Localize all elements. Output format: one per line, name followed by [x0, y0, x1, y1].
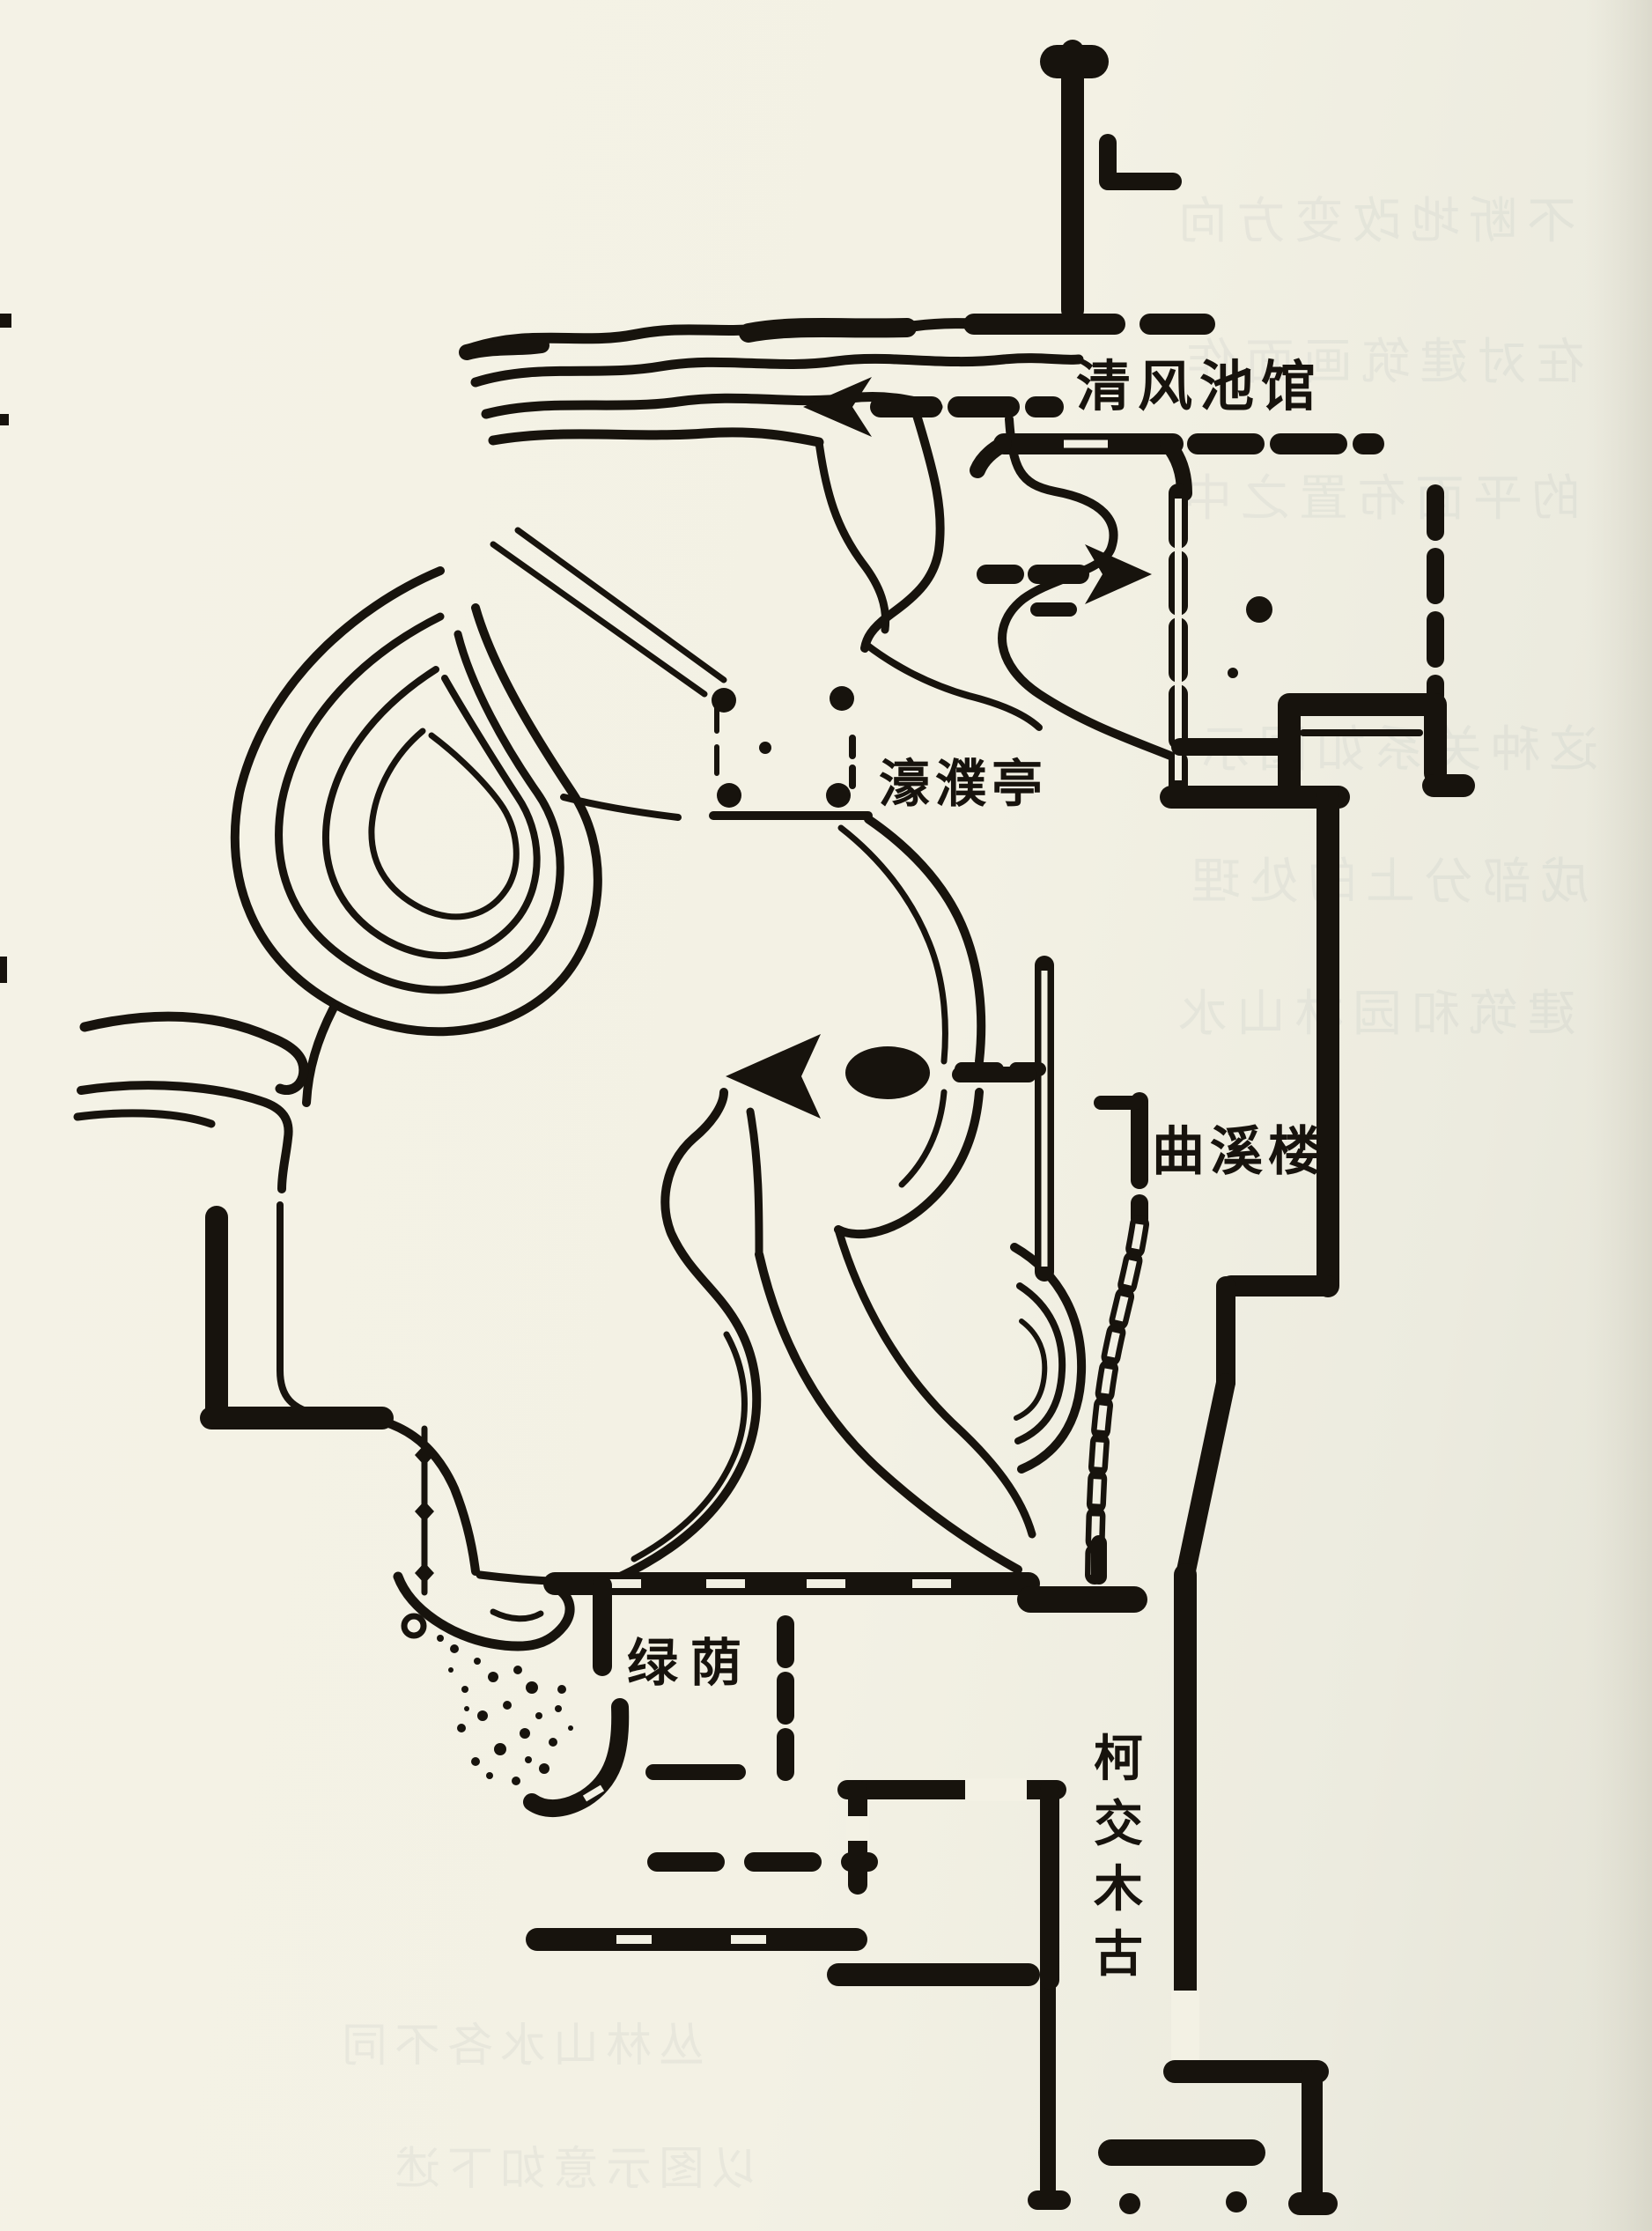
label-quxi-tower: 曲溪楼	[1152, 1123, 1326, 1181]
label-gumu-char: 柯	[1094, 1732, 1143, 1787]
page-edge-shadow	[1585, 0, 1652, 2231]
page-edge-ink	[0, 314, 11, 983]
sight-arrow-north-west	[803, 377, 1053, 437]
bleedthrough-row: 丛林山水各不同	[335, 2021, 704, 2072]
pavilion-corner-column	[830, 686, 854, 711]
column-dot	[1246, 596, 1272, 623]
hooked-path	[532, 1707, 620, 1808]
pond-shorelines	[280, 797, 1081, 1582]
sight-arrow-east	[986, 544, 1152, 604]
quxi-tower-walls	[962, 965, 1139, 1575]
garden-plan-figure: 不断地改变方向 在对建筑画面作 的平面布置之中 这种关系如图示 成部分上的处理 …	[0, 0, 1652, 2231]
column-dot	[1226, 2191, 1247, 2213]
walkway-ring-node	[404, 1616, 424, 1636]
nw-hill-contours	[235, 530, 724, 1031]
label-qingfeng-pond-hall: 清风池馆	[1076, 357, 1323, 417]
west-stream	[77, 1016, 304, 1189]
label-gumu-char: 木	[1094, 1863, 1143, 1917]
pavilion-corner-column	[717, 783, 741, 808]
label-haopu-pavilion: 濠濮亭	[879, 756, 1048, 813]
column-dot	[1119, 2193, 1140, 2214]
walkway-column-dot	[415, 1562, 434, 1584]
rockery-wave-band	[465, 322, 1081, 442]
label-ancient-trees-vertical: 柯 交 木 古	[1094, 1732, 1143, 1983]
column-dot	[1228, 668, 1238, 678]
bleedthrough-text: 不断地改变方向 在对建筑画面作 的平面布置之中 这种关系如图示 成部分上的处理 …	[335, 195, 1598, 2195]
walkway-column-dot	[415, 1501, 434, 1522]
gumu-room	[838, 1790, 1057, 1980]
labels: 清风池馆 濠濮亭 曲溪楼 绿荫 柯 交 木 古	[627, 357, 1326, 1983]
label-green-shade: 绿荫	[627, 1635, 754, 1692]
haopu-pavilion	[712, 686, 868, 816]
stipple-rockery	[437, 1635, 573, 1785]
label-gumu-char: 古	[1094, 1928, 1143, 1983]
pavilion-corner-column	[826, 783, 851, 808]
north-l-wall	[1108, 143, 1173, 181]
scanned-book-page: 不断地改变方向 在对建筑画面作 的平面布置之中 这种关系如图示 成部分上的处理 …	[0, 0, 1652, 2231]
bleedthrough-row: 的平面布置之中	[1174, 472, 1581, 527]
bleedthrough-row: 不断地改变方向	[1169, 195, 1576, 249]
label-gumu-char: 交	[1094, 1798, 1143, 1852]
north-entry-walls	[974, 51, 1374, 493]
bleedthrough-row: 以图示意如下述	[387, 2145, 757, 2195]
bleedthrough-row: 建筑和园林山水	[1169, 987, 1576, 1042]
bleedthrough-row: 成部分上的处理	[1183, 855, 1589, 910]
